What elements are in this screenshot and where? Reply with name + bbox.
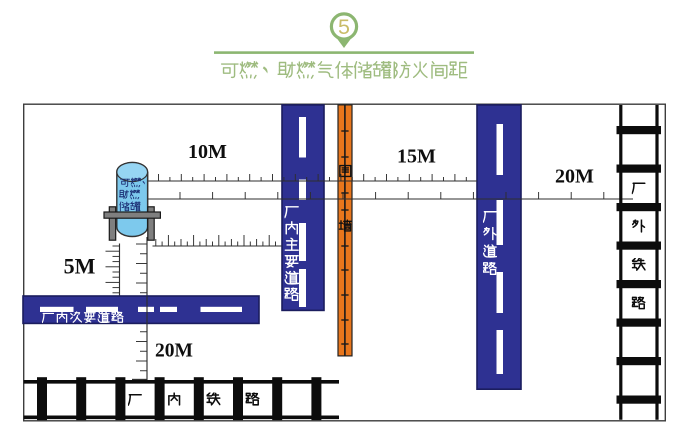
svg-text:5: 5 — [338, 15, 350, 39]
svg-text:5M: 5M — [64, 254, 96, 279]
svg-text:20M: 20M — [155, 341, 193, 362]
svg-text:20M: 20M — [555, 166, 594, 188]
svg-text:10M: 10M — [188, 141, 227, 163]
svg-text:15M: 15M — [397, 146, 436, 168]
